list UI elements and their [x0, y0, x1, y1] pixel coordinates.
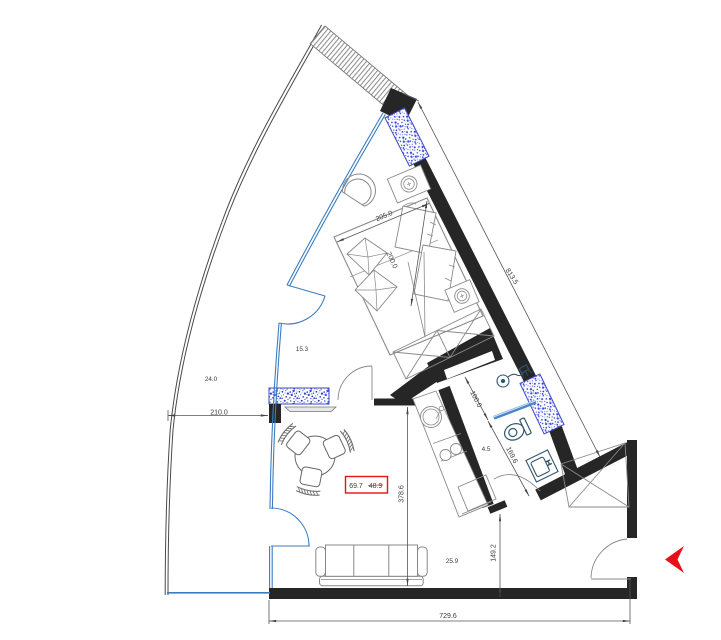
svg-text:69.7: 69.7	[349, 483, 363, 490]
svg-text:25.9: 25.9	[446, 558, 459, 565]
svg-text:378.6: 378.6	[399, 485, 406, 503]
svg-text:4.5: 4.5	[482, 446, 491, 453]
svg-text:210.0: 210.0	[210, 410, 228, 417]
svg-text:48.9: 48.9	[369, 483, 383, 490]
svg-text:729.6: 729.6	[439, 613, 457, 620]
svg-text:149.2: 149.2	[491, 544, 498, 562]
svg-text:24.0: 24.0	[205, 376, 218, 383]
svg-text:15.3: 15.3	[296, 346, 309, 353]
